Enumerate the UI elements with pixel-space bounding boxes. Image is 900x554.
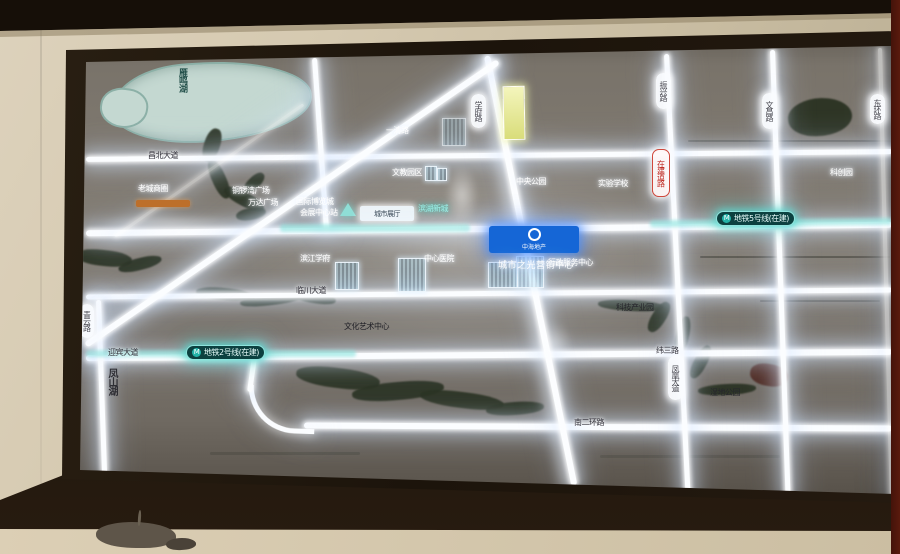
commercial-strip-icon (136, 200, 190, 207)
poi-label: 中心医院 (424, 254, 454, 263)
poi-label: 万达广场 (248, 198, 278, 207)
station-marker-icon (340, 203, 356, 216)
photo-right-edge (891, 0, 900, 554)
road-label: 临川大道 (296, 285, 326, 296)
area-label: 文化艺术中心 (344, 321, 389, 332)
road-label: 南二环路 (574, 417, 604, 428)
showroom-sign: 城市展厅 (360, 206, 414, 221)
project-badge: 中海地产 (489, 226, 579, 253)
poi-label: 实验学校 (598, 179, 628, 188)
metro-line5-label: 地铁5号线(在建) (734, 213, 789, 224)
area-label: 科技产业园 (616, 302, 654, 313)
wall-crease (40, 28, 42, 528)
metro-line5-pill: M 地铁5号线(在建) (716, 211, 795, 226)
poi-label: 科创园 (830, 168, 853, 177)
poi-label: 铜锣湾广场 (232, 186, 270, 195)
lake-label: 雁鸣湖 (176, 68, 189, 122)
station-name-line1: 国际博览城 (296, 197, 334, 206)
road-label: 迎宾大道 (108, 347, 138, 358)
road-label: 纬三路 (656, 345, 679, 356)
metro-line2-pill: M 地铁2号线(在建) (186, 345, 265, 360)
poi-label: 中央公园 (516, 177, 546, 186)
metro-icon: M (722, 214, 731, 223)
metro-icon: M (192, 348, 201, 357)
poi-label: 老城商圈 (138, 184, 168, 193)
project-logo-icon (528, 228, 541, 241)
project-name: 中海地产 (522, 242, 546, 251)
road-pill: 学府路 (471, 94, 486, 128)
photo-of-map-display: 雁鸣湖 凤山湖 学府路 振兴路 文昌路 青云路 凤凰大道 东环路 在建道路 M … (0, 0, 900, 554)
station-name-line2: 会展中心站 (300, 208, 338, 217)
landmark-tower-icon (503, 86, 526, 140)
hill-lake-label: 凤山湖 (104, 368, 119, 428)
road-label: 昌北大道 (148, 150, 178, 161)
construction-road-pill: 在建道路 (652, 149, 670, 197)
poi-label: 行政服务中心 (548, 258, 593, 267)
poi-label: 滨江学府 (300, 254, 330, 263)
road-pill: 振兴路 (656, 73, 671, 109)
district-label: 滨湖新城 (418, 203, 448, 214)
road-pill: 凤凰大道 (668, 356, 683, 400)
illuminated-map-screen: 雁鸣湖 凤山湖 学府路 振兴路 文昌路 青云路 凤凰大道 东环路 在建道路 M … (0, 0, 900, 554)
metro-line2-label: 地铁2号线(在建) (204, 347, 259, 358)
area-label: 湿地公园 (710, 387, 740, 398)
road-pill: 文昌路 (762, 93, 777, 129)
road-pill: 东环路 (870, 94, 885, 124)
poi-label: 文教园区 (392, 168, 422, 177)
poi-label: 一清路 (386, 126, 409, 135)
